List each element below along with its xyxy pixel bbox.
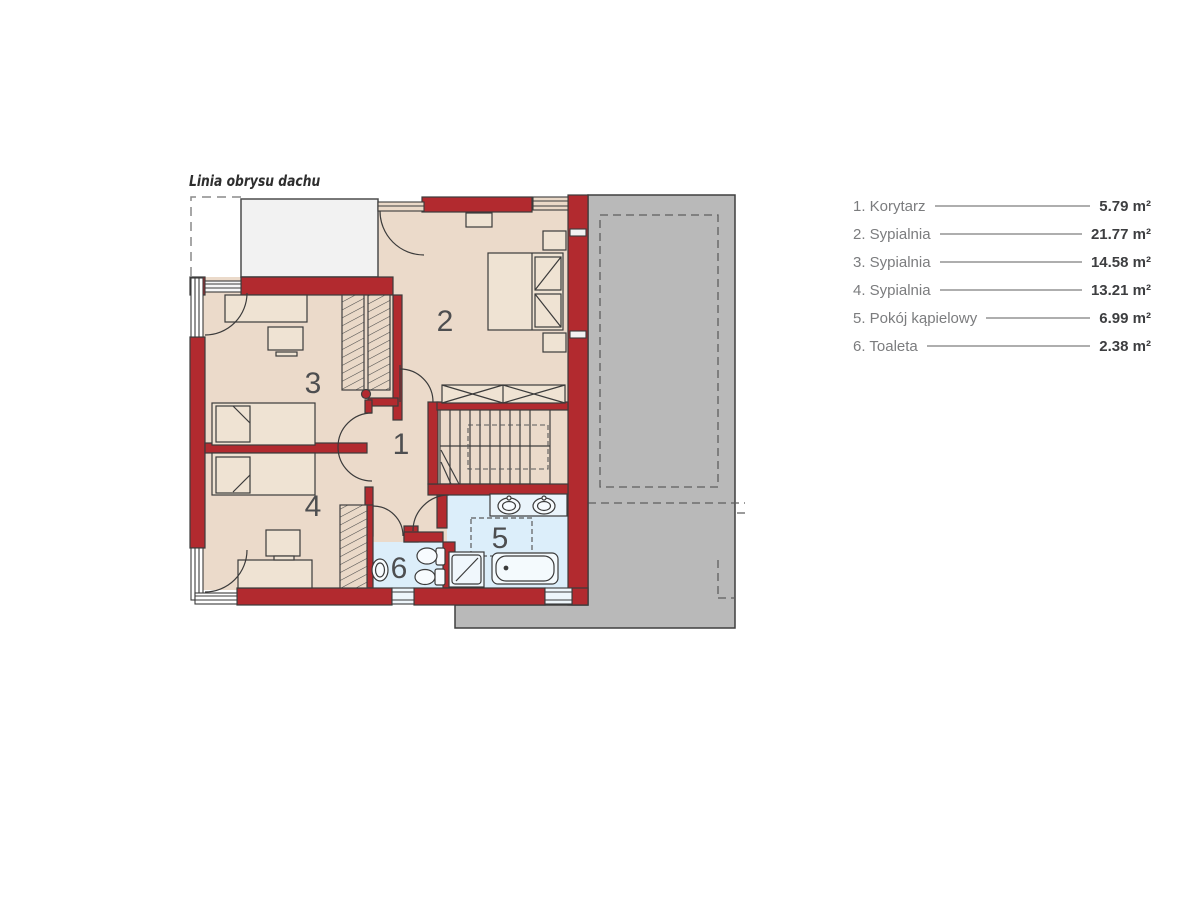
legend-label: 3. Sypialnia — [853, 254, 931, 271]
nightstand-top — [543, 231, 566, 250]
dresser — [466, 213, 492, 227]
wall-top — [422, 197, 532, 212]
column-marker — [362, 390, 371, 399]
legend-leader-line — [940, 233, 1082, 235]
wall-below-balcony — [241, 277, 393, 295]
legend-label: 5. Pokój kąpielowy — [853, 310, 977, 327]
floor-plan: 1 2 3 4 5 6 — [185, 170, 745, 640]
room-number-3: 3 — [305, 367, 322, 400]
window-bottom-toilet — [392, 588, 414, 604]
legend-leader-line — [986, 317, 1090, 319]
wall-bottom — [237, 588, 392, 605]
wardrobe-hall-right — [368, 295, 390, 390]
nightstand-bottom — [543, 333, 566, 352]
legend-row: 2. Sypialnia 21.77 m² — [853, 220, 1151, 248]
room-number-4: 4 — [305, 490, 322, 523]
wardrobe-hall-left — [342, 295, 364, 390]
window-top-left — [205, 281, 241, 292]
window-left-upper — [191, 278, 203, 337]
wardrobe-room4 — [340, 505, 367, 588]
legend-leader-line — [927, 345, 1091, 347]
double-bed — [488, 253, 563, 330]
legend-area-value: 5.79 m² — [1099, 198, 1151, 215]
legend-row: 4. Sypialnia 13.21 m² — [853, 276, 1151, 304]
legend-label: 1. Korytarz — [853, 198, 926, 215]
wardrobe-x-room2 — [442, 385, 565, 403]
legend-leader-line — [940, 289, 1082, 291]
toilet-sink — [372, 559, 388, 581]
bed-room3 — [212, 403, 315, 445]
window-bottom-left-corner — [195, 593, 237, 604]
roof-outline-dashed — [191, 197, 241, 280]
balcony — [191, 197, 378, 280]
wall-pier-right-2 — [570, 331, 586, 338]
legend-area-value: 13.21 m² — [1091, 282, 1151, 299]
wall-right — [568, 195, 588, 605]
legend-row: 1. Korytarz 5.79 m² — [853, 192, 1151, 220]
legend-row: 3. Sypialnia 14.58 m² — [853, 248, 1151, 276]
legend-label: 4. Sypialnia — [853, 282, 931, 299]
room-number-6: 6 — [391, 552, 408, 585]
window-left-lower — [191, 548, 203, 600]
shower — [449, 552, 484, 587]
legend-label: 2. Sypialnia — [853, 226, 931, 243]
bed-room4 — [212, 453, 315, 495]
bathtub — [492, 553, 558, 584]
legend-leader-line — [935, 205, 1091, 207]
bidet — [415, 569, 445, 585]
legend-label: 6. Toaleta — [853, 338, 918, 355]
window-top-right — [533, 197, 568, 210]
room-number-1: 1 — [393, 428, 410, 461]
legend-area-value: 14.58 m² — [1091, 254, 1151, 271]
legend-area-value: 6.99 m² — [1099, 310, 1151, 327]
balcony-deck — [241, 199, 378, 277]
legend-area-value: 21.77 m² — [1091, 226, 1151, 243]
legend-area-value: 2.38 m² — [1099, 338, 1151, 355]
room-number-2: 2 — [437, 305, 454, 338]
toilet — [417, 548, 445, 565]
wall-left — [190, 337, 205, 548]
legend-row: 5. Pokój kąpielowy 6.99 m² — [853, 304, 1151, 332]
page: { "header": { "roof_outline_label": "Lin… — [0, 0, 1200, 900]
room-number-5: 5 — [492, 522, 509, 555]
wall-pier-right-1 — [570, 229, 586, 236]
window-balcony-sidelight — [378, 202, 424, 211]
room-legend: 1. Korytarz 5.79 m² 2. Sypialnia 21.77 m… — [853, 192, 1151, 360]
legend-leader-line — [940, 261, 1082, 263]
legend-row: 6. Toaleta 2.38 m² — [853, 332, 1151, 360]
window-bottom-bath — [545, 588, 572, 604]
